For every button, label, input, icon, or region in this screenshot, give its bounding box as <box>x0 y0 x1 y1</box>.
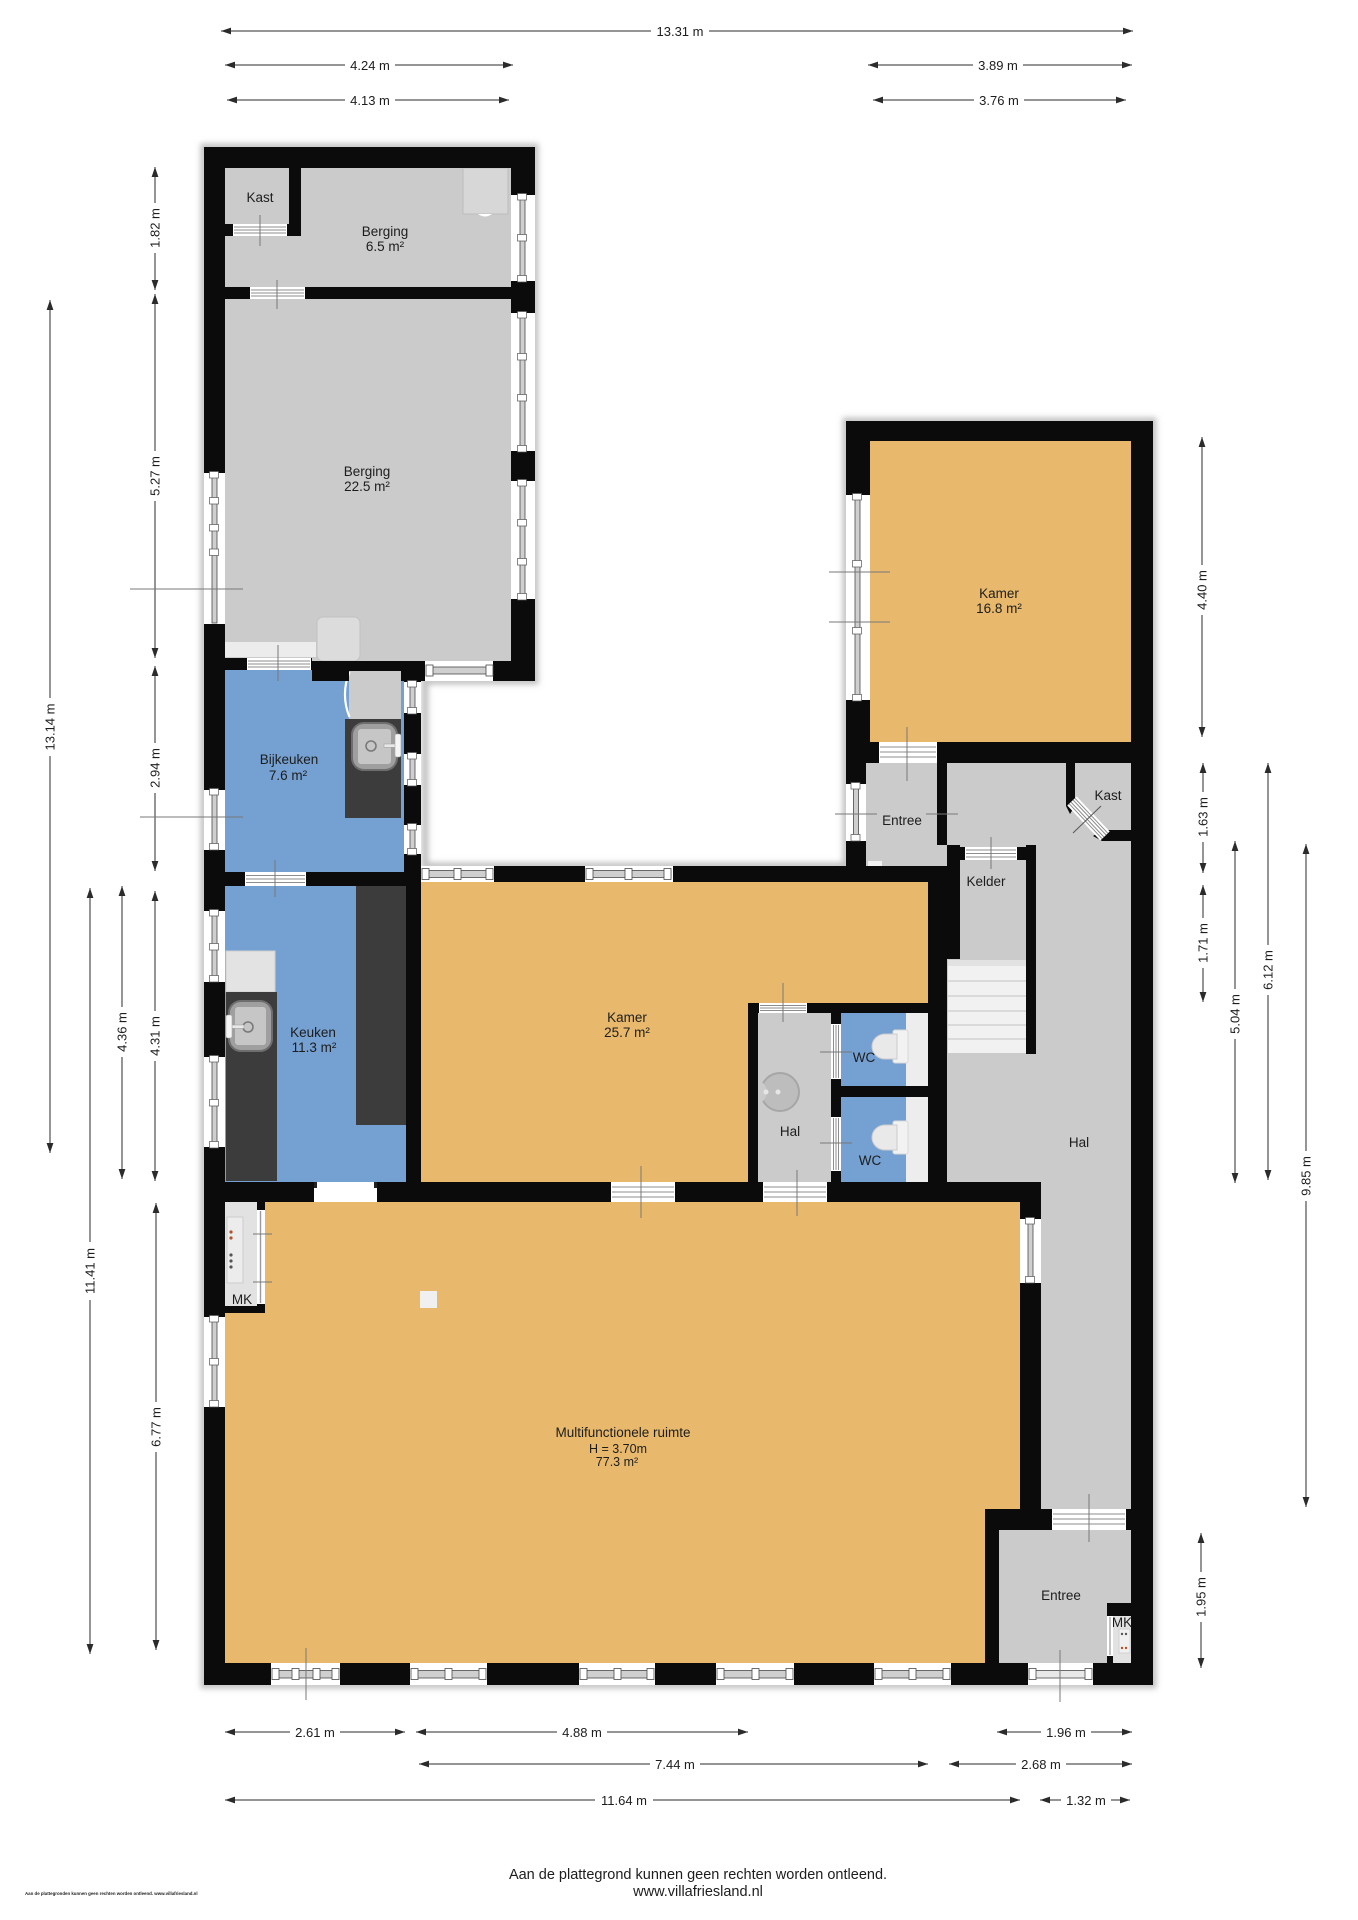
svg-text:Berging: Berging <box>344 464 391 479</box>
svg-text:6.12 m: 6.12 m <box>1261 950 1276 990</box>
svg-text:Kast: Kast <box>246 190 273 205</box>
svg-text:WC: WC <box>853 1050 876 1065</box>
svg-text:Kamer: Kamer <box>607 1010 647 1025</box>
svg-text:4.13 m: 4.13 m <box>350 93 390 108</box>
svg-text:4.40 m: 4.40 m <box>1195 570 1210 610</box>
svg-text:Kast: Kast <box>1094 788 1121 803</box>
svg-text:Bijkeuken: Bijkeuken <box>260 752 319 767</box>
svg-text:1.82 m: 1.82 m <box>148 208 163 248</box>
svg-text:13.31 m: 13.31 m <box>657 24 704 39</box>
svg-text:5.27 m: 5.27 m <box>148 456 163 496</box>
svg-text:6.5 m²: 6.5 m² <box>366 239 405 254</box>
svg-text:2.68 m: 2.68 m <box>1021 1757 1061 1772</box>
svg-text:4.88 m: 4.88 m <box>562 1725 602 1740</box>
svg-text:11.41 m: 11.41 m <box>83 1248 98 1294</box>
svg-text:3.76 m: 3.76 m <box>979 93 1019 108</box>
svg-text:11.64 m: 11.64 m <box>601 1793 647 1808</box>
svg-text:4.31 m: 4.31 m <box>148 1016 163 1056</box>
svg-text:Berging: Berging <box>362 224 409 239</box>
svg-text:WC: WC <box>859 1153 882 1168</box>
svg-text:Multifunctionele ruimte: Multifunctionele ruimte <box>555 1425 690 1440</box>
svg-text:Entree: Entree <box>882 813 922 828</box>
svg-text:MK: MK <box>232 1292 252 1307</box>
svg-text:H = 3.70m: H = 3.70m <box>589 1442 647 1456</box>
svg-text:4.36 m: 4.36 m <box>115 1012 130 1052</box>
svg-text:3.89 m: 3.89 m <box>978 58 1018 73</box>
svg-text:Hal: Hal <box>1069 1135 1089 1150</box>
svg-text:Keuken: Keuken <box>290 1025 336 1040</box>
svg-text:77.3 m²: 77.3 m² <box>596 1455 638 1469</box>
svg-text:9.85 m: 9.85 m <box>1299 1156 1314 1196</box>
svg-text:13.14 m: 13.14 m <box>43 704 58 751</box>
svg-text:5.04 m: 5.04 m <box>1228 994 1243 1034</box>
svg-text:1.71 m: 1.71 m <box>1196 923 1211 963</box>
svg-text:Hal: Hal <box>780 1124 800 1139</box>
svg-text:1.32 m: 1.32 m <box>1066 1793 1106 1808</box>
svg-text:Aan de plattegrond kunnen geen: Aan de plattegrond kunnen geen rechten w… <box>509 1867 887 1883</box>
svg-text:Kamer: Kamer <box>979 586 1019 601</box>
svg-text:2.61 m: 2.61 m <box>295 1725 335 1740</box>
svg-text:1.63 m: 1.63 m <box>1196 797 1211 837</box>
svg-text:Entree: Entree <box>1041 1588 1081 1603</box>
svg-text:16.8 m²: 16.8 m² <box>976 601 1022 616</box>
svg-text:25.7 m²: 25.7 m² <box>604 1025 650 1040</box>
svg-text:1.96 m: 1.96 m <box>1046 1725 1086 1740</box>
svg-text:7.44 m: 7.44 m <box>655 1757 695 1772</box>
svg-text:2.94 m: 2.94 m <box>148 748 163 788</box>
svg-text:11.3 m²: 11.3 m² <box>292 1040 337 1055</box>
svg-text:6.77 m: 6.77 m <box>149 1407 164 1447</box>
svg-text:Aan de plattegronden kunnen ge: Aan de plattegronden kunnen geen rechten… <box>25 1891 198 1896</box>
svg-text:Kelder: Kelder <box>966 874 1006 889</box>
svg-text:4.24 m: 4.24 m <box>350 58 390 73</box>
svg-text:22.5 m²: 22.5 m² <box>344 479 390 494</box>
svg-text:1.95 m: 1.95 m <box>1194 1577 1209 1617</box>
svg-text:MK: MK <box>1112 1615 1132 1630</box>
svg-text:7.6 m²: 7.6 m² <box>269 768 308 783</box>
svg-text:www.villafriesland.nl: www.villafriesland.nl <box>632 1884 763 1900</box>
